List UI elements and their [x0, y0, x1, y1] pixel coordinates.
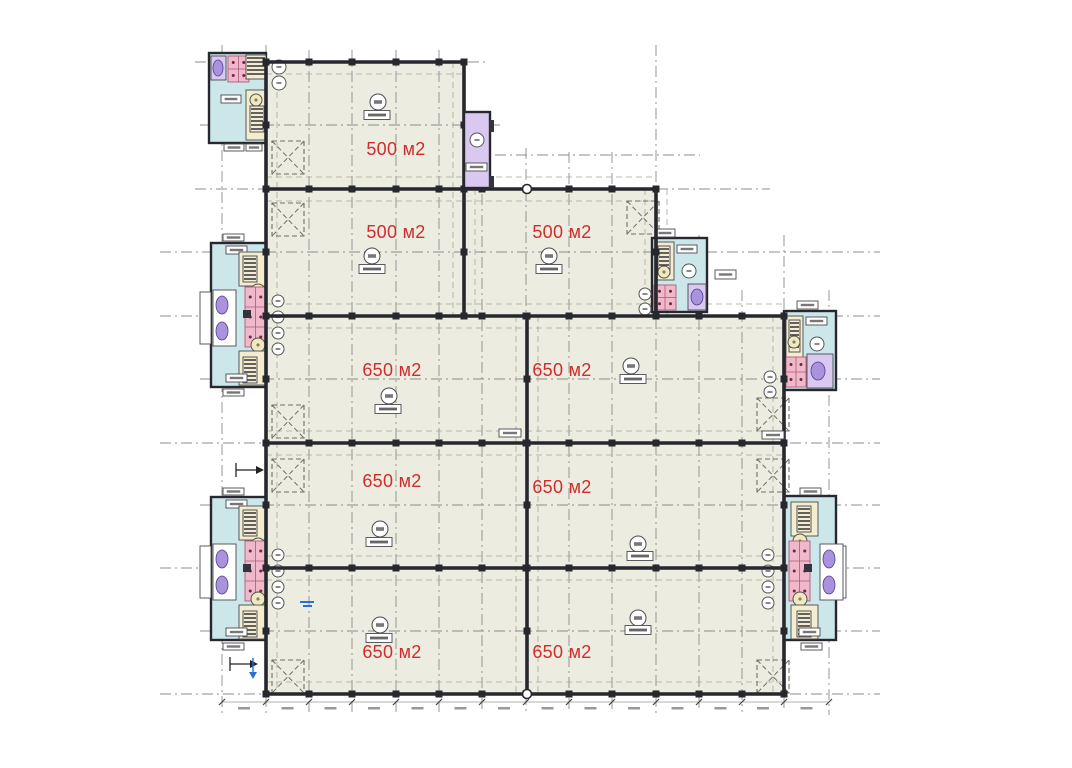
area-label: 650 м2: [362, 360, 421, 380]
tag-text-smudge: [766, 570, 771, 572]
tag-text-smudge: [276, 602, 281, 604]
tag-text-smudge: [276, 332, 281, 334]
tag-text-smudge: [815, 343, 820, 345]
toilet-icon: [790, 363, 793, 366]
column: [436, 59, 443, 66]
column: [566, 565, 573, 572]
column: [696, 565, 703, 572]
column: [306, 440, 313, 447]
column: [393, 313, 400, 320]
duct: [243, 310, 251, 318]
column: [306, 691, 313, 698]
dimension-text-smudge: [757, 707, 769, 710]
column: [263, 122, 270, 129]
dimension-text-smudge: [498, 707, 510, 710]
label-text-smudge: [230, 249, 243, 251]
duct: [243, 564, 251, 572]
stair-flight: [243, 510, 257, 536]
column: [781, 440, 788, 447]
dimension-text-smudge: [628, 707, 640, 710]
column: [263, 249, 270, 256]
column: [524, 628, 531, 635]
tag-text-smudge: [634, 542, 642, 546]
toilet-icon: [803, 590, 806, 593]
column: [479, 440, 486, 447]
column: [461, 59, 468, 66]
column: [436, 565, 443, 572]
tag-text-smudge: [643, 293, 648, 295]
area-label: 650 м2: [532, 360, 591, 380]
tag-text-smudge: [276, 570, 281, 572]
dimension-text-smudge: [585, 707, 597, 710]
tag-text-smudge: [687, 270, 692, 272]
label-text-smudge: [225, 98, 238, 100]
tag-text-smudge: [276, 348, 281, 350]
tag-text-smudge: [766, 602, 771, 604]
toilet-icon: [800, 378, 803, 381]
sanitary-fixture: [216, 550, 228, 568]
tag-text-smudge: [475, 139, 480, 141]
label-text-smudge: [624, 378, 642, 381]
label-text-smudge: [230, 503, 243, 505]
column: [739, 313, 746, 320]
sanitary-fixture: [823, 550, 835, 568]
dimension-text-smudge: [672, 707, 684, 710]
floor-plan-drawing: 500 м2500 м2500 м2650 м2650 м2650 м2650 …: [0, 0, 1072, 768]
tag-text-smudge: [368, 254, 376, 258]
column: [263, 313, 270, 320]
column: [696, 440, 703, 447]
column: [479, 691, 486, 698]
column: [306, 565, 313, 572]
floor-plan: 500 м2500 м2500 м2650 м2650 м2650 м2650 …: [0, 0, 1072, 768]
tag-text-smudge: [766, 554, 771, 556]
column: [566, 186, 573, 193]
dimension-text-smudge: [455, 707, 467, 710]
label-text-smudge: [804, 490, 817, 492]
dimension-text-smudge: [412, 707, 424, 710]
column: [263, 691, 270, 698]
entry-porch: [200, 292, 211, 344]
label-text-smudge: [659, 232, 672, 234]
toilet-icon: [793, 570, 796, 573]
stair-flight: [243, 256, 257, 282]
label-text-smudge: [368, 114, 386, 117]
toilet-icon: [242, 61, 245, 64]
shaft-door: [489, 176, 494, 188]
column: [349, 440, 356, 447]
sanitary-fixture: [213, 60, 223, 76]
column: [306, 313, 313, 320]
tag-text-smudge: [376, 623, 384, 627]
column: [781, 691, 788, 698]
toilet-icon: [800, 363, 803, 366]
toilet-icon: [658, 290, 661, 293]
area-label: 650 м2: [362, 471, 421, 491]
tag-text-smudge: [627, 364, 635, 368]
label-text-smudge: [719, 273, 732, 275]
column: [349, 59, 356, 66]
column: [609, 186, 616, 193]
column: [609, 691, 616, 698]
column: [781, 313, 788, 320]
column: [524, 502, 531, 509]
column: [696, 313, 703, 320]
dimension-text-smudge: [325, 707, 337, 710]
toilet-icon: [669, 302, 672, 305]
label-text-smudge: [370, 541, 388, 544]
label-text-smudge: [766, 434, 780, 436]
column: [263, 628, 270, 635]
column: [781, 565, 788, 572]
column: [609, 565, 616, 572]
tag-text-smudge: [276, 554, 281, 556]
area-label: 650 м2: [362, 642, 421, 662]
column: [524, 376, 531, 383]
drain-icon: [254, 98, 257, 101]
toilet-icon: [658, 302, 661, 305]
area-label: 500 м2: [366, 139, 425, 159]
label-text-smudge: [540, 268, 558, 271]
column: [524, 440, 531, 447]
tag-text-smudge: [643, 308, 648, 310]
column: [306, 186, 313, 193]
elevator-shaft: [464, 112, 490, 188]
drain-icon: [256, 343, 259, 346]
toilet-icon: [259, 570, 262, 573]
dimension-text-smudge: [715, 707, 727, 710]
toilet-icon: [249, 336, 252, 339]
sanitary-fixture: [691, 289, 703, 305]
tag-text-smudge: [276, 300, 281, 302]
column: [479, 565, 486, 572]
toilet-icon: [669, 290, 672, 293]
area-label: 650 м2: [532, 477, 591, 497]
dimension-text-smudge: [368, 707, 380, 710]
label-text-smudge: [805, 645, 818, 647]
axis-node: [523, 185, 532, 194]
area-label: 650 м2: [532, 642, 591, 662]
label-text-smudge: [230, 377, 243, 379]
toilet-icon: [259, 296, 262, 299]
sanitary-fixture: [216, 576, 228, 594]
dimension-text-smudge: [542, 707, 554, 710]
area-label: 500 м2: [532, 222, 591, 242]
column: [653, 313, 660, 320]
blue-note-smudge: [300, 601, 314, 603]
label-text-smudge: [227, 645, 240, 647]
stair-flight: [250, 106, 264, 132]
column: [461, 313, 468, 320]
column: [393, 59, 400, 66]
stair-flight: [797, 506, 811, 532]
column: [739, 440, 746, 447]
dimension-text-smudge: [282, 707, 294, 710]
column: [739, 691, 746, 698]
toilet-icon: [803, 550, 806, 553]
tag-text-smudge: [376, 527, 384, 531]
label-text-smudge: [631, 555, 649, 558]
tag-text-smudge: [768, 376, 773, 378]
tag-text-smudge: [634, 616, 642, 620]
entry-porch: [200, 546, 211, 598]
shaft-door: [489, 120, 494, 132]
column: [263, 186, 270, 193]
dimension-text-smudge: [801, 707, 813, 710]
column: [436, 313, 443, 320]
label-text-smudge: [801, 304, 814, 306]
column: [653, 186, 660, 193]
column: [349, 691, 356, 698]
column: [461, 249, 468, 256]
column: [609, 440, 616, 447]
column: [739, 565, 746, 572]
column: [393, 691, 400, 698]
blue-arrow-icon: [249, 672, 257, 679]
toilet-icon: [232, 74, 235, 77]
column: [393, 440, 400, 447]
label-text-smudge: [379, 408, 397, 411]
column: [781, 628, 788, 635]
column: [566, 313, 573, 320]
label-text-smudge: [228, 146, 241, 148]
sanitary-fixture: [216, 296, 228, 314]
label-text-smudge: [227, 391, 240, 393]
label-text-smudge: [363, 268, 381, 271]
column: [263, 565, 270, 572]
column: [349, 313, 356, 320]
label-text-smudge: [230, 631, 243, 633]
toilet-icon: [259, 550, 262, 553]
column: [696, 691, 703, 698]
column: [393, 186, 400, 193]
drain-icon: [662, 270, 665, 273]
tag-text-smudge: [766, 586, 771, 588]
column: [566, 440, 573, 447]
column: [263, 502, 270, 509]
column: [653, 691, 660, 698]
toilet-icon: [793, 550, 796, 553]
dimension-text-smudge: [238, 707, 250, 710]
sanitary-fixture: [823, 576, 835, 594]
column: [436, 440, 443, 447]
tag-text-smudge: [277, 66, 282, 68]
label-text-smudge: [810, 320, 823, 322]
column: [436, 691, 443, 698]
drain-icon: [792, 340, 795, 343]
tag-text-smudge: [768, 391, 773, 393]
tag-text-smudge: [277, 82, 282, 84]
label-text-smudge: [227, 490, 240, 492]
column: [781, 502, 788, 509]
column: [781, 376, 788, 383]
toilet-icon: [232, 61, 235, 64]
label-text-smudge: [249, 146, 259, 148]
axis-node: [523, 690, 532, 699]
column: [609, 313, 616, 320]
tag-text-smudge: [374, 100, 382, 104]
toilet-icon: [249, 550, 252, 553]
column: [349, 565, 356, 572]
label-text-smudge: [370, 637, 388, 640]
column: [653, 249, 660, 256]
drain-icon: [256, 597, 259, 600]
label-text-smudge: [227, 236, 240, 238]
tag-text-smudge: [385, 394, 393, 398]
column: [263, 376, 270, 383]
column: [524, 313, 531, 320]
sanitary-fixture: [216, 322, 228, 340]
toilet-icon: [790, 378, 793, 381]
label-text-smudge: [629, 629, 647, 632]
section-arrow-icon: [250, 660, 258, 668]
column: [263, 440, 270, 447]
blue-note-smudge: [303, 605, 312, 607]
column: [349, 186, 356, 193]
tag-text-smudge: [545, 254, 553, 258]
column: [263, 59, 270, 66]
column: [653, 440, 660, 447]
column: [479, 313, 486, 320]
label-text-smudge: [503, 432, 517, 434]
toilet-icon: [249, 590, 252, 593]
section-arrow-icon: [256, 466, 264, 474]
column: [566, 691, 573, 698]
drain-icon: [798, 597, 801, 600]
toilet-icon: [242, 74, 245, 77]
area-label: 500 м2: [366, 222, 425, 242]
tag-text-smudge: [276, 586, 281, 588]
column: [436, 186, 443, 193]
toilet-icon: [249, 296, 252, 299]
sanitary-fixture: [811, 362, 825, 380]
duct: [804, 564, 812, 572]
column: [393, 565, 400, 572]
column: [524, 565, 531, 572]
column: [653, 565, 660, 572]
column: [306, 59, 313, 66]
label-text-smudge: [803, 631, 816, 633]
label-text-smudge: [681, 248, 694, 250]
toilet-icon: [793, 590, 796, 593]
toilet-icon: [259, 316, 262, 319]
label-text-smudge: [470, 166, 483, 168]
